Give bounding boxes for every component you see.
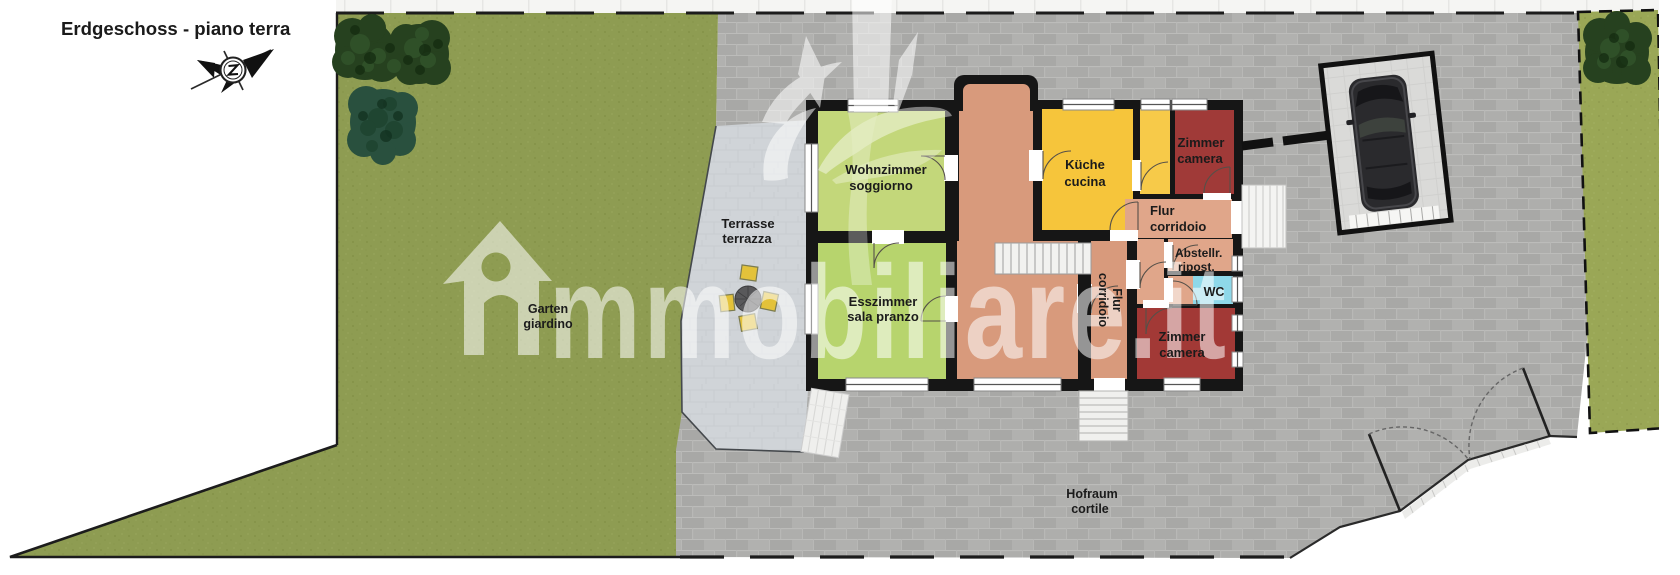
svg-text:Esszimmer: Esszimmer xyxy=(849,294,918,309)
svg-text:soggiorno: soggiorno xyxy=(849,178,913,193)
svg-text:Wohnzimmer: Wohnzimmer xyxy=(845,162,926,177)
svg-text:Abstellr.: Abstellr. xyxy=(1175,246,1222,260)
svg-text:Garten: Garten xyxy=(528,302,568,316)
svg-text:Hofraum: Hofraum xyxy=(1066,487,1117,501)
svg-text:camera: camera xyxy=(1159,345,1205,360)
svg-text:terrazza: terrazza xyxy=(722,231,772,246)
svg-text:camera: camera xyxy=(1177,151,1223,166)
svg-text:sala pranzo: sala pranzo xyxy=(847,309,919,324)
svg-text:Küche: Küche xyxy=(1065,157,1105,172)
svg-text:cucina: cucina xyxy=(1064,174,1106,189)
svg-text:Zimmer: Zimmer xyxy=(1178,135,1225,150)
svg-text:corridoio: corridoio xyxy=(1150,219,1206,234)
svg-text:WC: WC xyxy=(1204,285,1225,299)
svg-text:Zimmer: Zimmer xyxy=(1159,329,1206,344)
svg-text:Terrasse: Terrasse xyxy=(721,216,774,231)
svg-text:Flur: Flur xyxy=(1150,203,1175,218)
svg-text:corridoio: corridoio xyxy=(1096,273,1110,328)
svg-text:Erdgeschoss - piano terra: Erdgeschoss - piano terra xyxy=(61,18,291,39)
svg-text:ripost.: ripost. xyxy=(1178,260,1215,274)
svg-text:Flur: Flur xyxy=(1110,288,1124,312)
svg-text:giardino: giardino xyxy=(523,317,573,331)
svg-text:cortile: cortile xyxy=(1071,502,1109,516)
